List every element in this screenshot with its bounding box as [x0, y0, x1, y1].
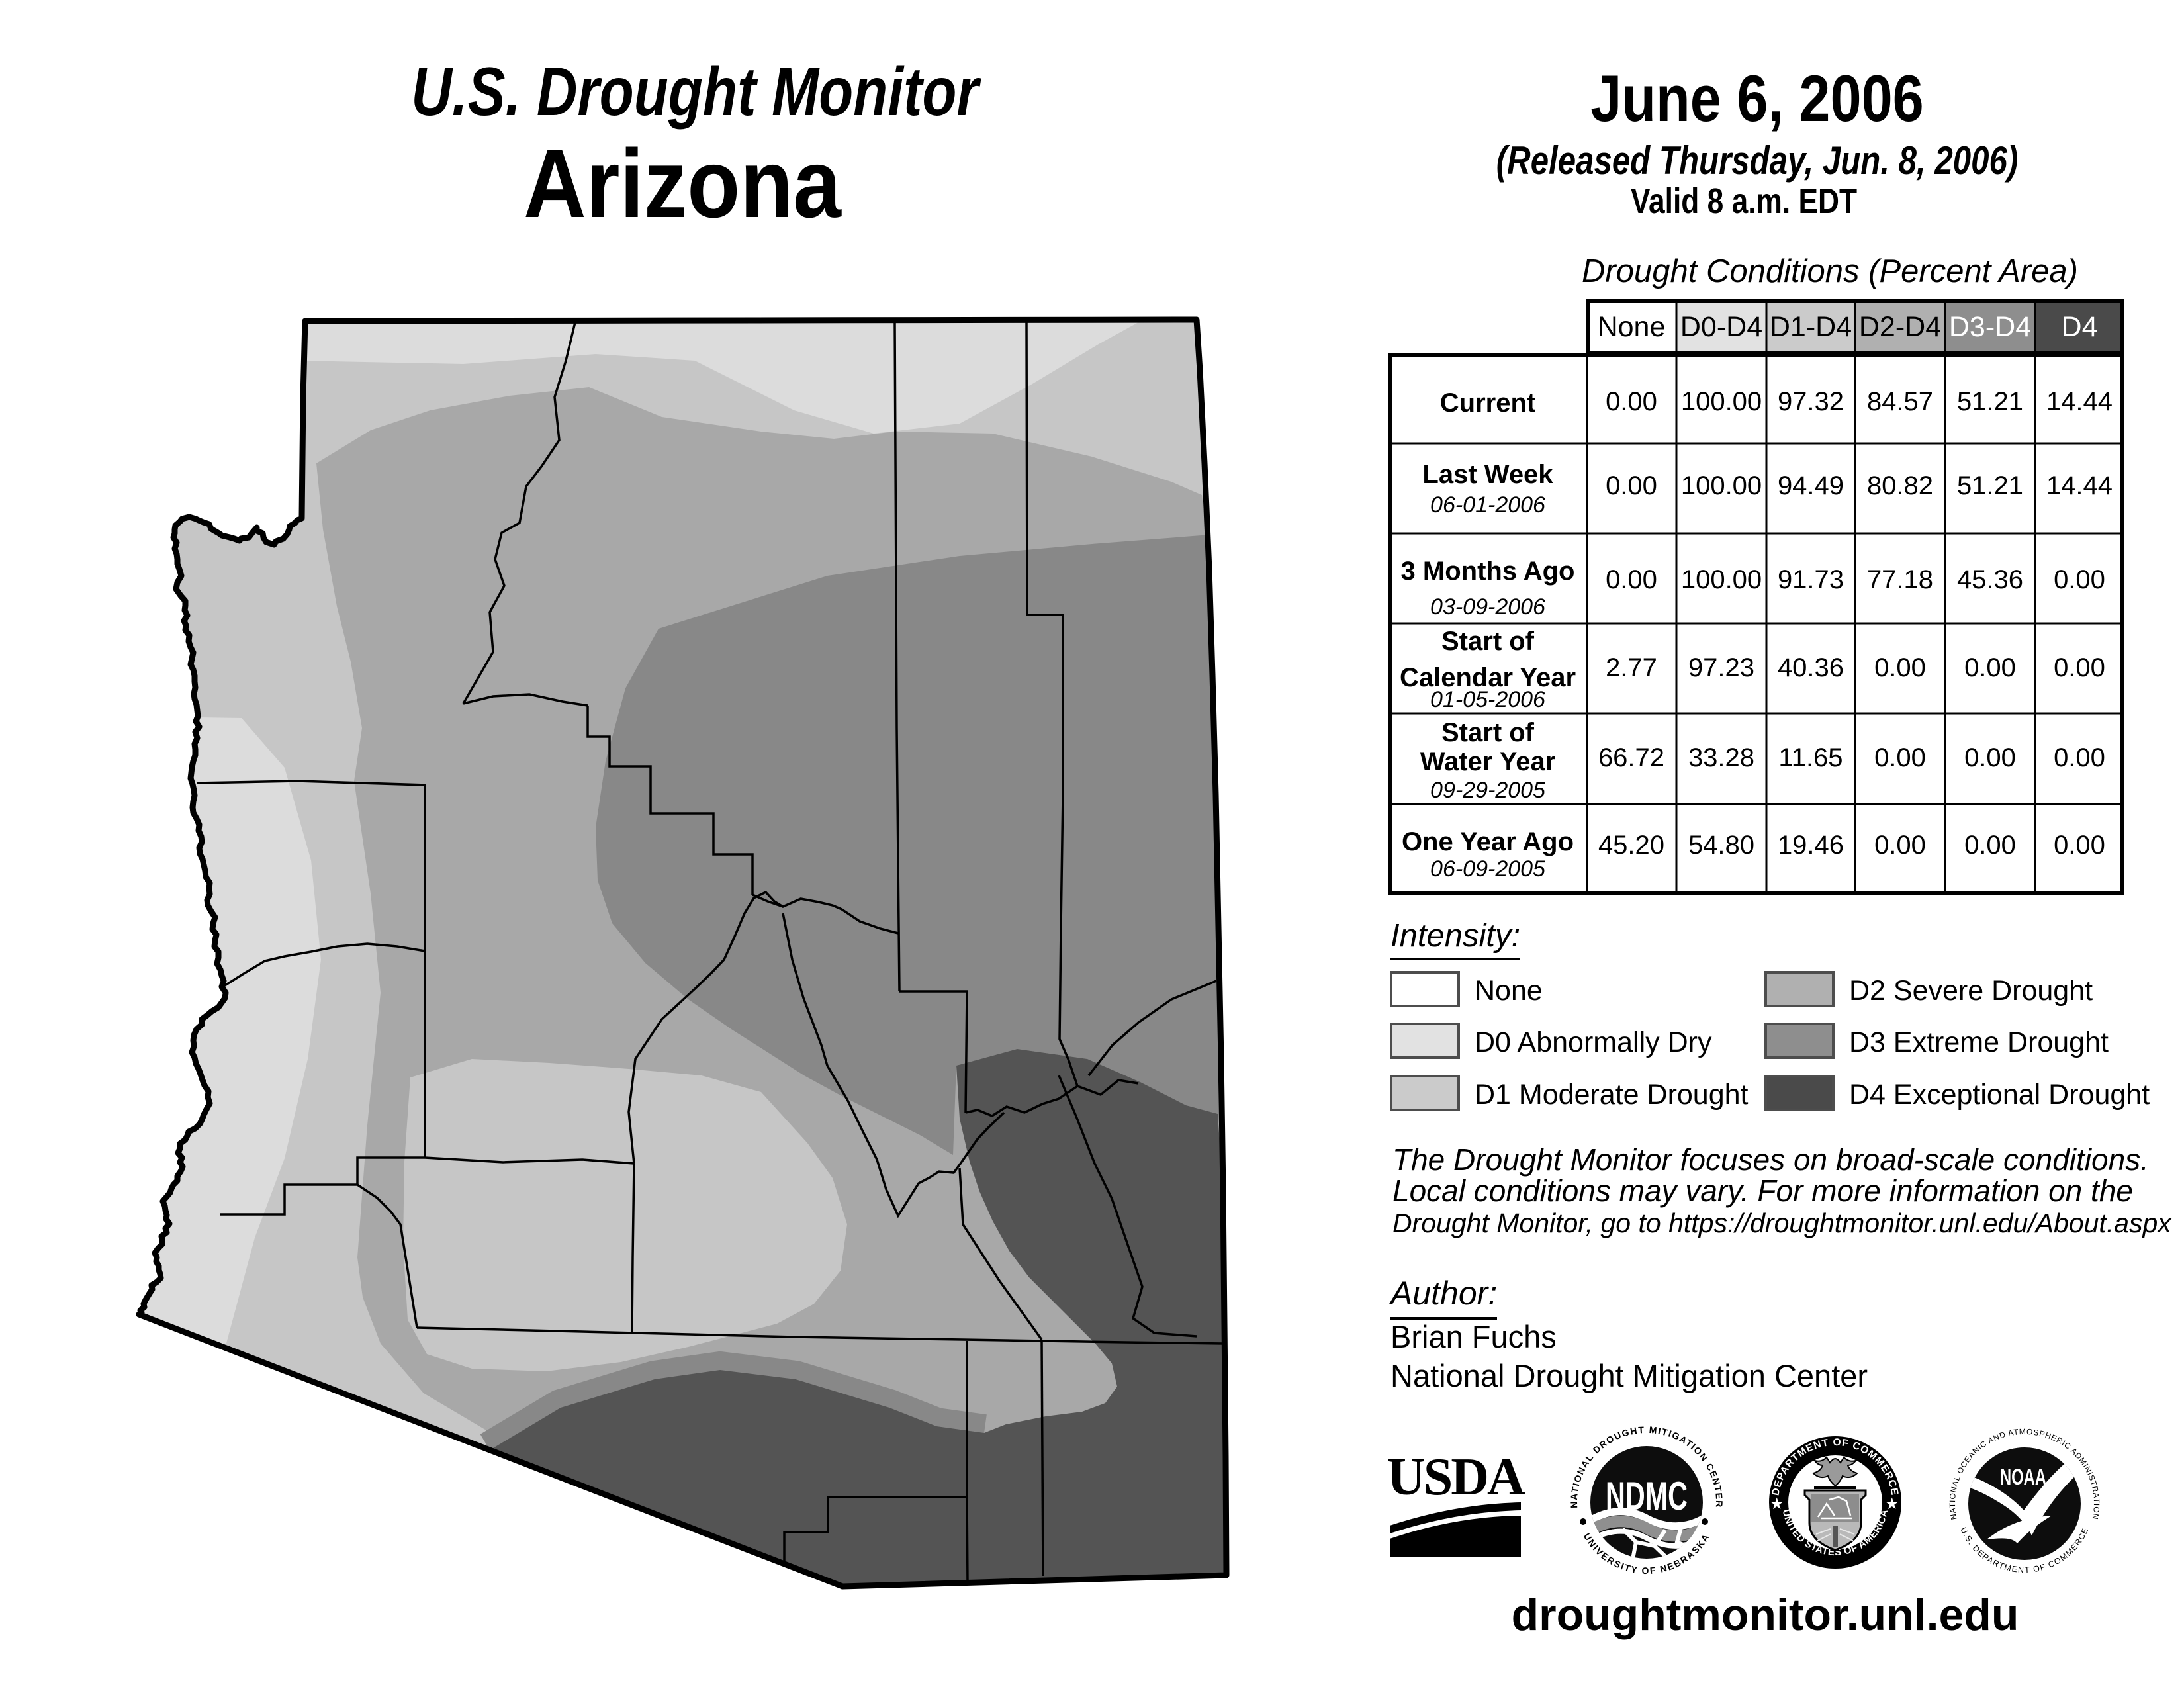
svg-text:51.21: 51.21 — [1957, 471, 2023, 500]
svg-text:3 Months Ago: 3 Months Ago — [1401, 557, 1575, 586]
svg-text:84.57: 84.57 — [1867, 387, 1933, 416]
svg-text:33.28: 33.28 — [1688, 743, 1754, 772]
svg-text:NOAA: NOAA — [2000, 1465, 2046, 1490]
svg-text:USDA: USDA — [1387, 1448, 1525, 1506]
svg-text:0.00: 0.00 — [1964, 653, 2016, 682]
svg-text:Start of: Start of — [1441, 718, 1535, 747]
svg-text:0.00: 0.00 — [1874, 743, 1926, 772]
svg-text:0.00: 0.00 — [1874, 831, 1926, 860]
svg-text:91.73: 91.73 — [1778, 565, 1844, 594]
svg-text:06-09-2005: 06-09-2005 — [1430, 856, 1545, 882]
svg-text:0.00: 0.00 — [2054, 565, 2105, 594]
svg-text:Start of: Start of — [1441, 627, 1535, 656]
svg-text:D3 Extreme Drought: D3 Extreme Drought — [1849, 1027, 2109, 1058]
svg-text:D2-D4: D2-D4 — [1859, 311, 1941, 343]
svg-text:0.00: 0.00 — [2054, 653, 2105, 682]
svg-text:0.00: 0.00 — [1874, 653, 1926, 682]
svg-text:0.00: 0.00 — [1606, 565, 1657, 594]
svg-text:11.65: 11.65 — [1778, 743, 1843, 772]
svg-text:★: ★ — [1770, 1495, 1784, 1513]
svg-text:14.44: 14.44 — [2046, 471, 2113, 500]
svg-text:0.00: 0.00 — [1606, 387, 1657, 416]
svg-text:D0 Abnormally Dry: D0 Abnormally Dry — [1475, 1027, 1712, 1058]
svg-text:94.49: 94.49 — [1778, 471, 1844, 500]
svg-text:01-05-2006: 01-05-2006 — [1430, 687, 1545, 712]
svg-text:03-09-2006: 03-09-2006 — [1430, 594, 1545, 619]
svg-text:19.46: 19.46 — [1778, 831, 1844, 860]
svg-text:45.20: 45.20 — [1598, 831, 1664, 860]
svg-text:14.44: 14.44 — [2046, 387, 2113, 416]
svg-text:100.00: 100.00 — [1681, 387, 1762, 416]
svg-text:0.00: 0.00 — [1964, 743, 2016, 772]
svg-text:D4: D4 — [2062, 311, 2098, 343]
svg-text:D0-D4: D0-D4 — [1680, 311, 1762, 343]
svg-text:97.32: 97.32 — [1778, 387, 1844, 416]
svg-text:09-29-2005: 09-29-2005 — [1430, 778, 1545, 803]
svg-text:54.80: 54.80 — [1688, 831, 1754, 860]
svg-text:None: None — [1598, 311, 1666, 343]
svg-text:80.82: 80.82 — [1867, 471, 1933, 500]
svg-text:Water Year: Water Year — [1420, 747, 1556, 776]
svg-text:66.72: 66.72 — [1598, 743, 1664, 772]
svg-text:40.36: 40.36 — [1778, 653, 1844, 682]
svg-text:D1-D4: D1-D4 — [1770, 311, 1852, 343]
svg-text:100.00: 100.00 — [1681, 471, 1762, 500]
svg-text:0.00: 0.00 — [1606, 471, 1657, 500]
svg-text:0.00: 0.00 — [1964, 831, 2016, 860]
svg-text:0.00: 0.00 — [2054, 743, 2105, 772]
svg-text:D4 Exceptional Drought: D4 Exceptional Drought — [1849, 1079, 2150, 1111]
svg-text:D3-D4: D3-D4 — [1949, 311, 2031, 343]
svg-text:97.23: 97.23 — [1688, 653, 1754, 682]
svg-text:06-01-2006: 06-01-2006 — [1430, 492, 1545, 518]
svg-text:Current: Current — [1440, 388, 1535, 418]
svg-text:D2 Severe Drought: D2 Severe Drought — [1849, 975, 2093, 1007]
svg-text:Last Week: Last Week — [1422, 460, 1553, 489]
svg-text:2.77: 2.77 — [1606, 653, 1657, 682]
svg-text:None: None — [1475, 975, 1543, 1007]
svg-text:One Year Ago: One Year Ago — [1402, 827, 1574, 856]
svg-text:51.21: 51.21 — [1957, 387, 2023, 416]
svg-text:0.00: 0.00 — [2054, 831, 2105, 860]
svg-text:45.36: 45.36 — [1957, 565, 2023, 594]
svg-text:★: ★ — [1885, 1495, 1899, 1513]
svg-text:100.00: 100.00 — [1681, 565, 1762, 594]
svg-text:NDMC: NDMC — [1606, 1474, 1688, 1518]
svg-text:D1 Moderate Drought: D1 Moderate Drought — [1475, 1079, 1749, 1111]
svg-text:77.18: 77.18 — [1867, 565, 1933, 594]
